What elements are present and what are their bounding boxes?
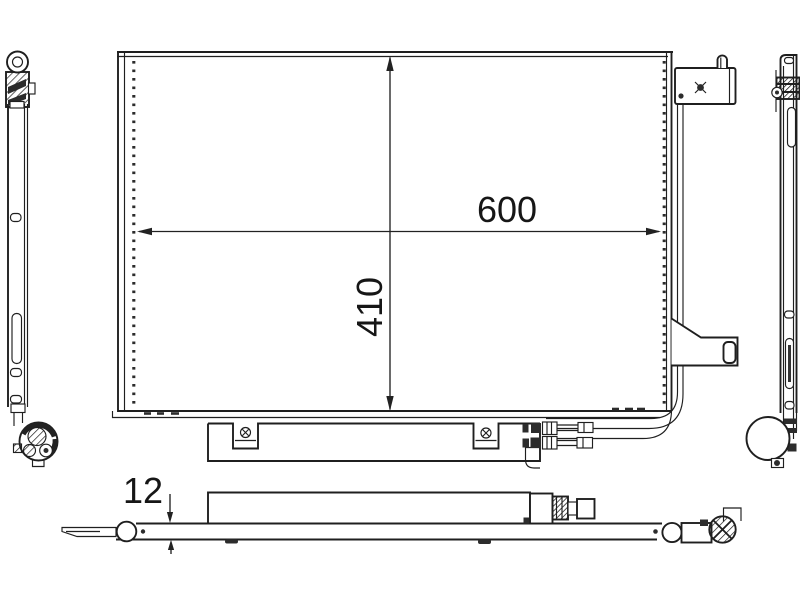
bracket-foot: [526, 448, 541, 469]
bottom-fitting-left: [11, 404, 58, 467]
end-fitting-bottom-view: [653, 508, 741, 543]
left-end-port: [117, 522, 137, 542]
receiver-drier-bottom: [747, 413, 798, 468]
mounting-tab-below: [225, 540, 238, 544]
dimension-core-width: 600: [137, 189, 661, 235]
core-depth-label: 12: [123, 470, 163, 511]
core-width-label: 600: [477, 189, 537, 230]
arrowhead-down-icon: [167, 512, 173, 523]
core-height-label: 410: [349, 277, 390, 337]
mounting-tab-below: [478, 540, 491, 545]
slot-dark-icon: [12, 314, 22, 364]
pipe-fittings-front: [523, 422, 594, 449]
screw-2-icon: [481, 428, 491, 438]
arrowhead-right-icon: [646, 228, 661, 235]
tank-outline-bottom-view: [208, 493, 530, 524]
mounting-bracket-top-right: [675, 55, 736, 104]
right-side-view: [747, 55, 800, 468]
technical-drawing-page: 600 410 12: [0, 0, 800, 600]
arrowhead-up-icon: [168, 540, 174, 550]
bottom-view: [62, 493, 741, 545]
slot-icon: [785, 311, 795, 318]
bottom-bracket: [208, 424, 540, 469]
screw-icon: [241, 428, 251, 438]
slot-icon: [785, 58, 794, 64]
condenser-drawing: 600 410 12: [0, 0, 800, 600]
arrowhead-left-icon: [137, 228, 152, 235]
arrowhead-up-icon: [386, 56, 393, 71]
slot-icon: [785, 402, 794, 410]
dimension-core-height: 410: [349, 56, 394, 411]
core-bottom-edge-inner: [113, 411, 661, 418]
arrowhead-down-icon: [386, 396, 393, 411]
mounting-bracket-right: [672, 319, 738, 366]
refrigerant-pipes: [545, 105, 683, 439]
slot-icon: [11, 214, 22, 222]
inlet-fitting-top-left: [6, 52, 35, 109]
front-view: [113, 52, 738, 468]
slot-icon: [11, 369, 22, 377]
pipe-fitting-bottom-view: [530, 494, 595, 524]
bracket-pin: [718, 55, 728, 68]
left-side-view: [6, 52, 58, 467]
bolt-hole-2-icon: [678, 93, 683, 98]
slot-icon: [11, 396, 22, 404]
slot-icon: [788, 108, 796, 148]
